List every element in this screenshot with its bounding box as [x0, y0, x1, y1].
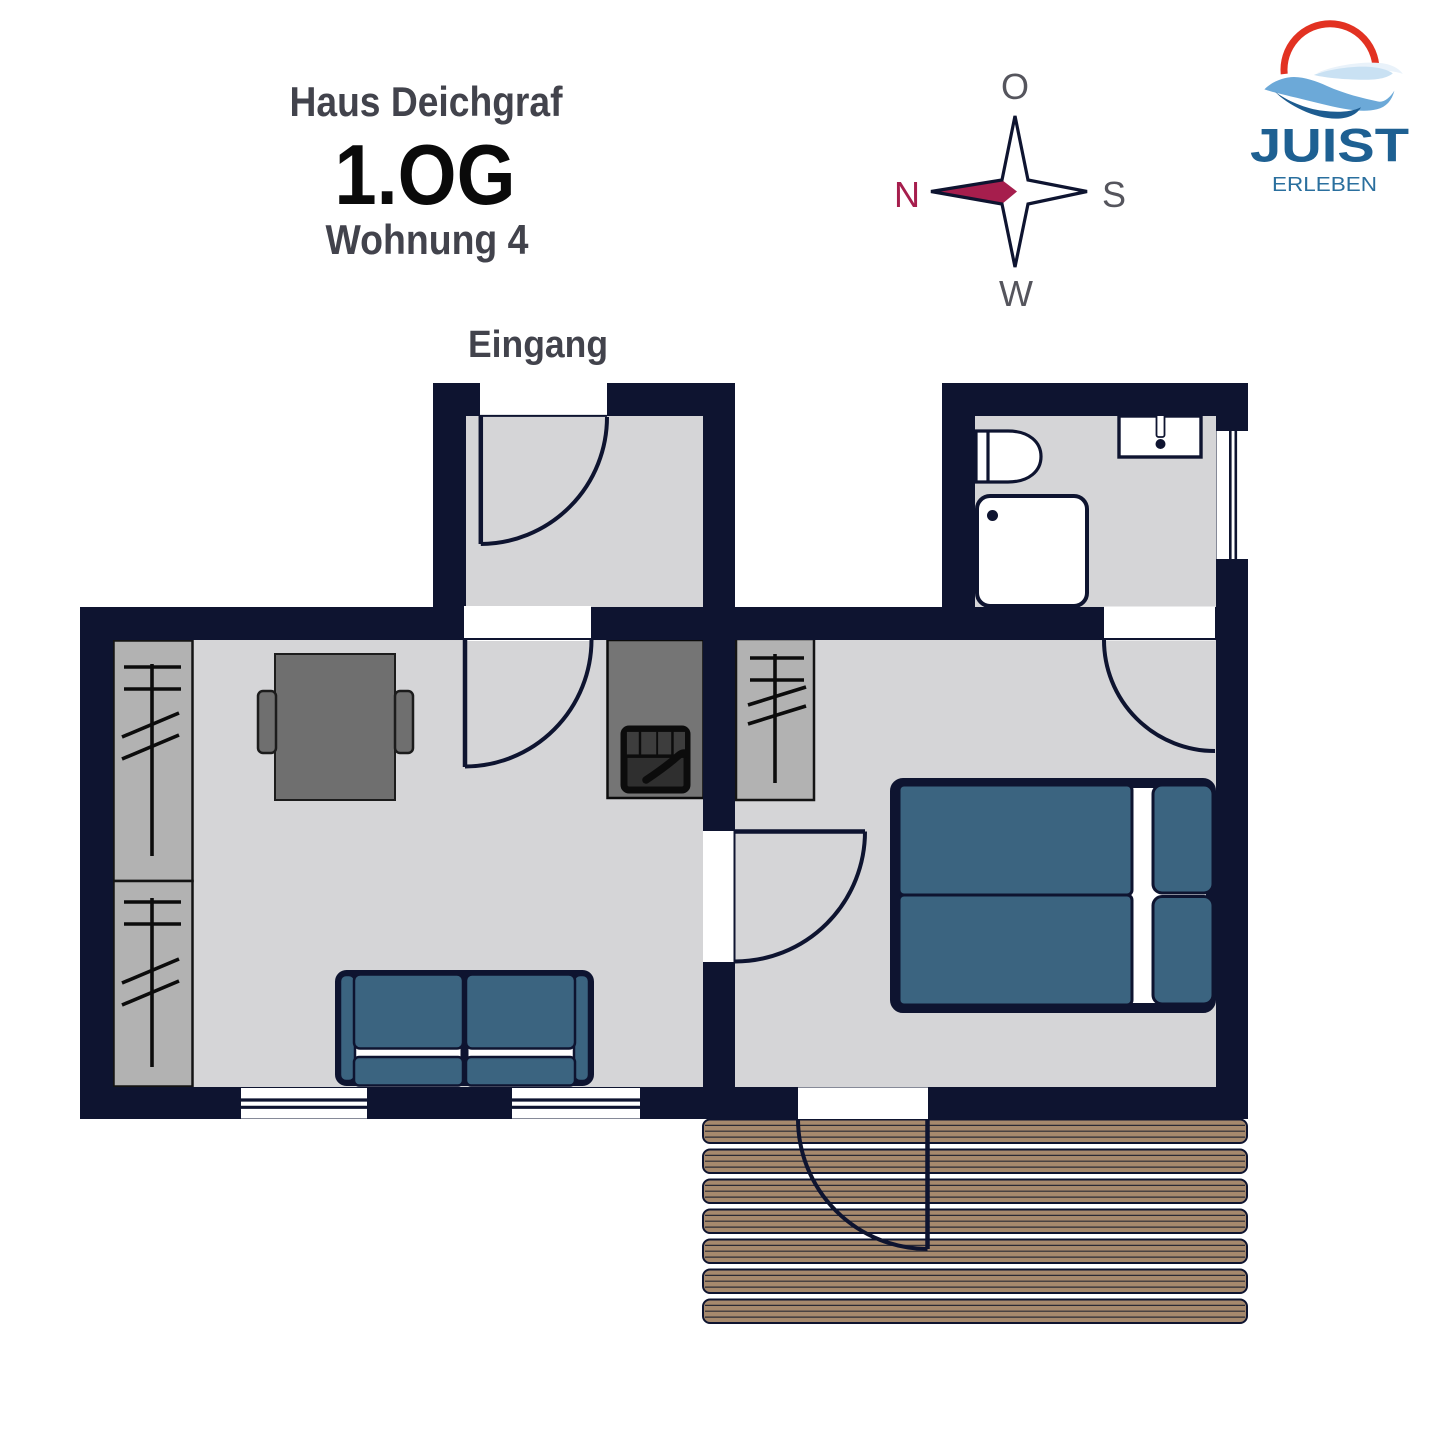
svg-text:ERLEBEN: ERLEBEN	[1272, 174, 1377, 196]
svg-text:O: O	[1001, 66, 1029, 107]
svg-text:N: N	[894, 174, 920, 215]
svg-text:1.OG: 1.OG	[335, 128, 516, 223]
svg-text:Haus Deichgraf: Haus Deichgraf	[290, 78, 564, 125]
svg-text:S: S	[1102, 174, 1126, 215]
svg-text:Wohnung 4: Wohnung 4	[326, 216, 530, 263]
svg-text:JUIST: JUIST	[1250, 119, 1409, 172]
svg-text:Eingang: Eingang	[468, 324, 608, 366]
svg-text:W: W	[999, 273, 1033, 314]
